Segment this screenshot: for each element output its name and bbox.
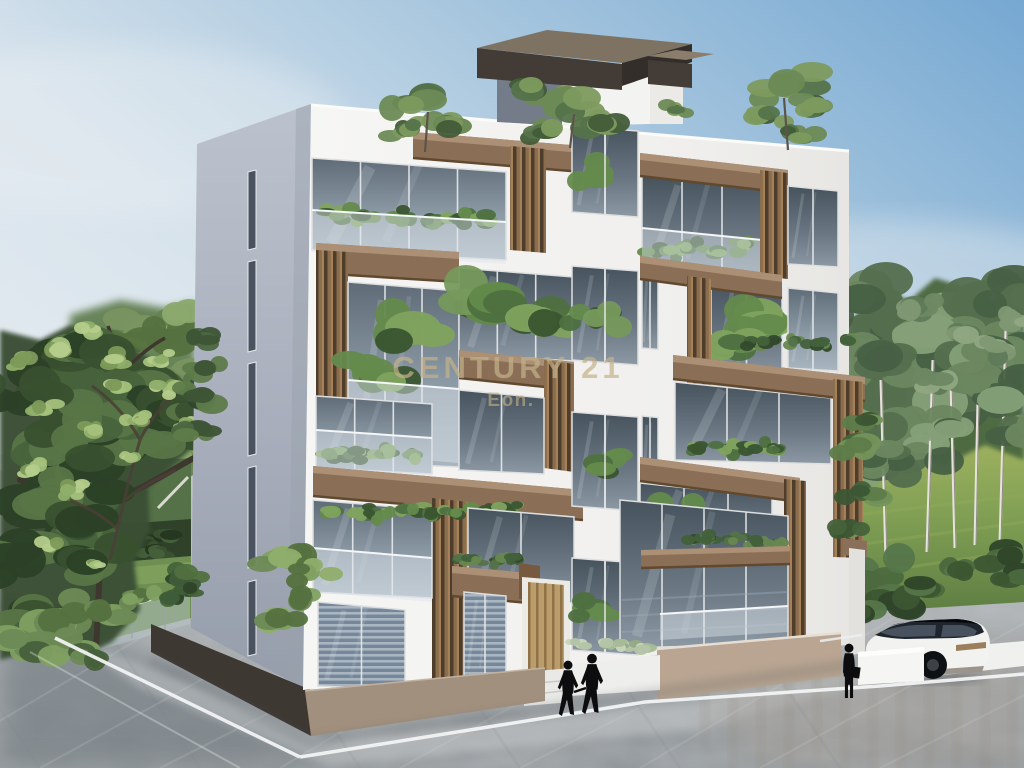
svg-text:Eon.: Eon. [487,390,534,411]
svg-text:CENTURY 21: CENTURY 21 [392,350,623,385]
